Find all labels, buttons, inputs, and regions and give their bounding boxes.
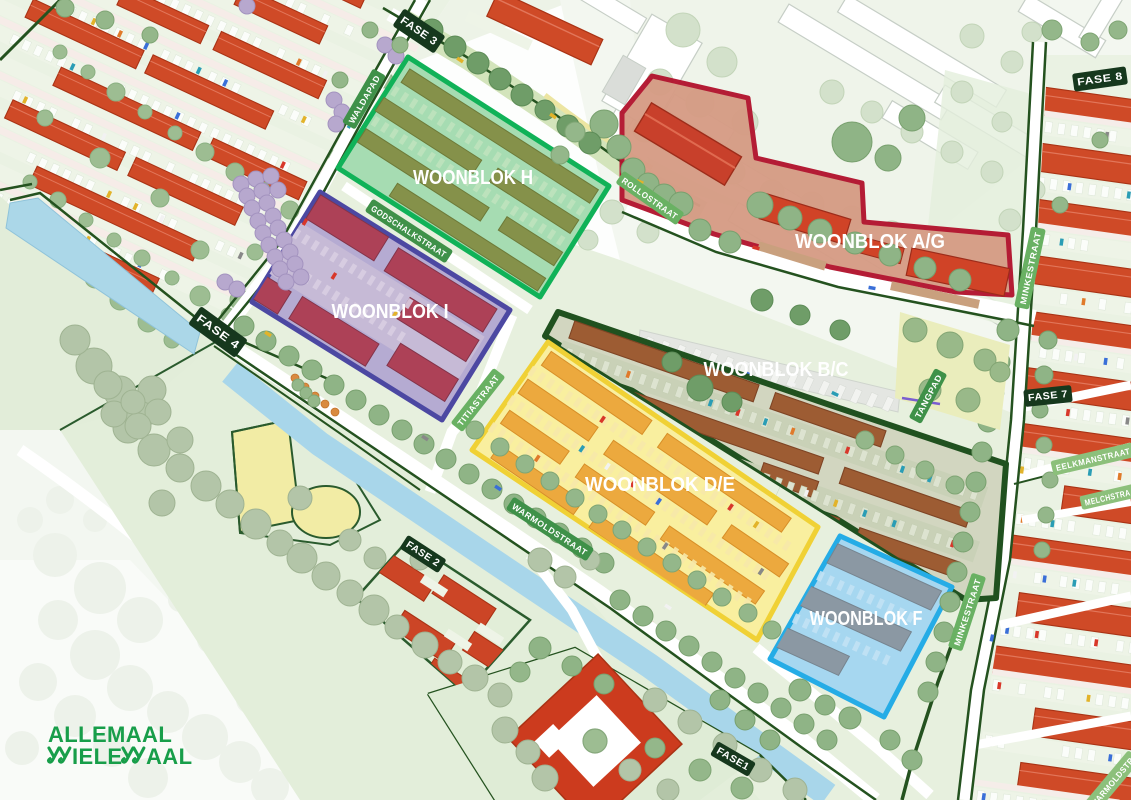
svg-text:WOONBLOK H: WOONBLOK H	[413, 167, 533, 189]
svg-text:WOONBLOK F: WOONBLOK F	[810, 608, 923, 630]
svg-text:WOONBLOK I: WOONBLOK I	[332, 301, 449, 323]
svg-text:WOONBLOK B/C: WOONBLOK B/C	[704, 359, 849, 381]
svg-text:WOONBLOK D/E: WOONBLOK D/E	[585, 474, 735, 496]
svg-text:AAL: AAL	[146, 744, 192, 769]
svg-text:IELE: IELE	[72, 744, 123, 769]
svg-text:WOONBLOK A/G: WOONBLOK A/G	[795, 231, 945, 253]
